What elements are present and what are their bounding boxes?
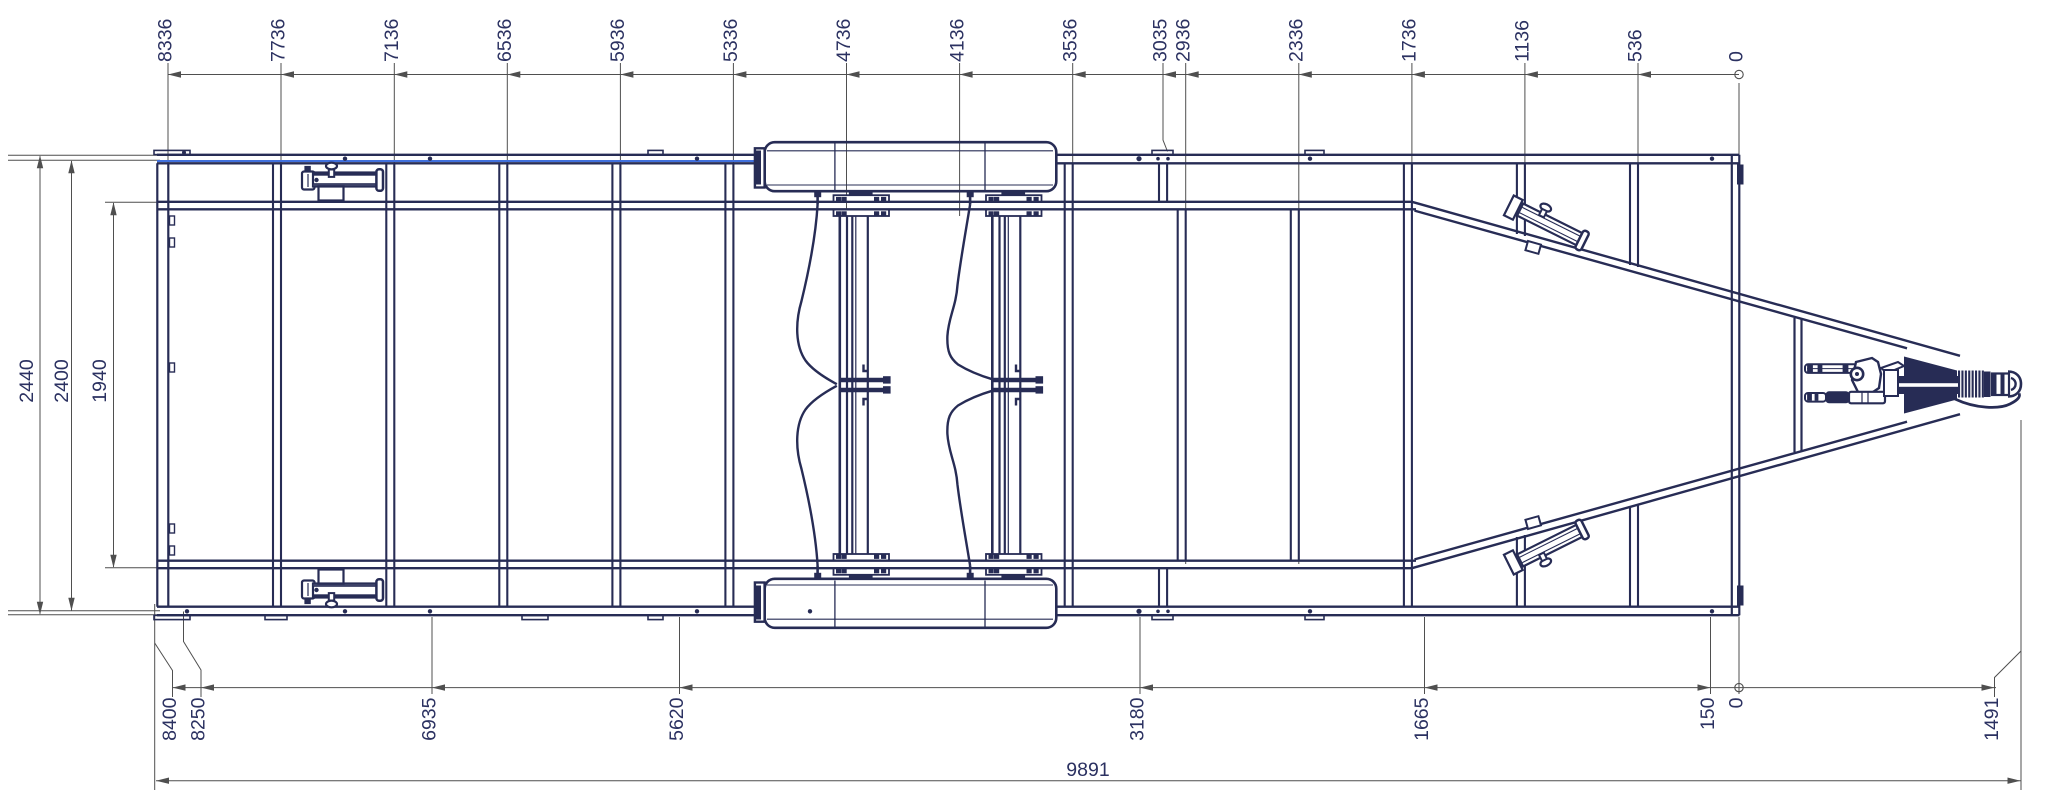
svg-text:536: 536 [1625, 29, 1647, 62]
svg-text:2440: 2440 [16, 359, 38, 403]
svg-text:8336: 8336 [155, 19, 177, 62]
svg-text:4736: 4736 [833, 19, 855, 62]
svg-text:2936: 2936 [1172, 19, 1194, 62]
svg-text:8250: 8250 [188, 697, 210, 741]
svg-text:1491: 1491 [1981, 698, 2003, 741]
svg-text:6935: 6935 [419, 697, 441, 741]
svg-text:5936: 5936 [607, 19, 629, 62]
svg-text:7136: 7136 [381, 19, 403, 62]
svg-text:7736: 7736 [268, 19, 290, 62]
svg-text:150: 150 [1697, 697, 1719, 730]
svg-text:4136: 4136 [946, 19, 968, 62]
svg-text:1665: 1665 [1411, 697, 1433, 741]
svg-text:1136: 1136 [1512, 20, 1534, 62]
svg-text:0: 0 [1726, 697, 1748, 708]
svg-text:8400: 8400 [159, 697, 181, 741]
svg-text:2400: 2400 [51, 359, 73, 403]
svg-text:5620: 5620 [666, 697, 688, 741]
svg-text:0: 0 [1726, 51, 1748, 62]
svg-text:9891: 9891 [1066, 759, 1109, 781]
svg-text:3536: 3536 [1059, 19, 1081, 62]
svg-text:1736: 1736 [1399, 19, 1421, 62]
svg-text:2336: 2336 [1286, 19, 1308, 62]
svg-text:1940: 1940 [89, 359, 111, 403]
svg-text:3180: 3180 [1127, 697, 1149, 741]
svg-text:6536: 6536 [494, 19, 516, 62]
svg-text:3035: 3035 [1150, 18, 1172, 62]
svg-text:5336: 5336 [720, 19, 742, 62]
